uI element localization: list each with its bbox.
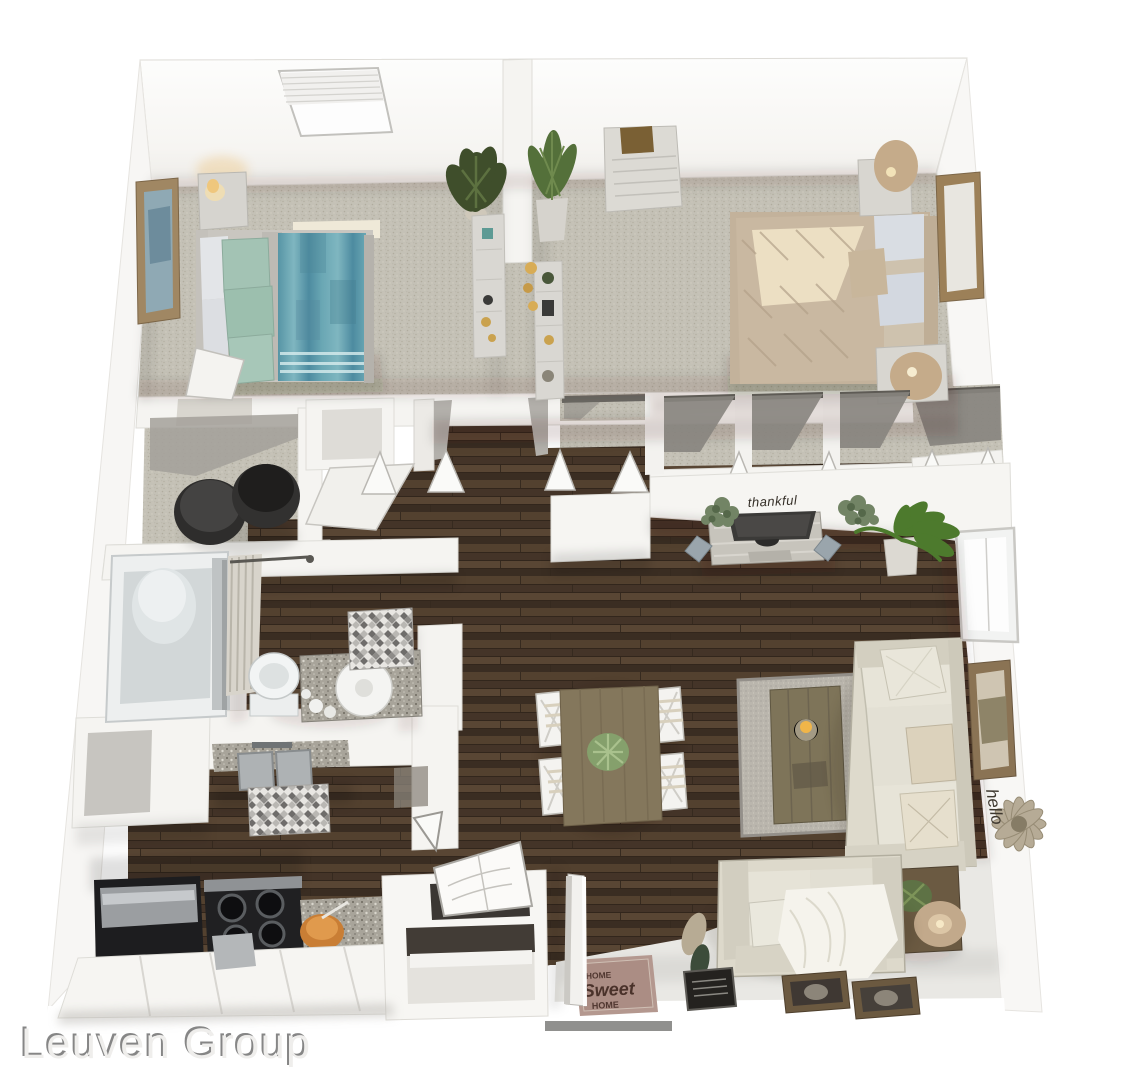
svg-text:thankful: thankful (747, 492, 798, 510)
svg-text:HOME: HOME (592, 1000, 619, 1011)
svg-text:Sweet: Sweet (582, 978, 636, 1001)
svg-text:Leuven Group: Leuven Group (21, 1020, 312, 1068)
